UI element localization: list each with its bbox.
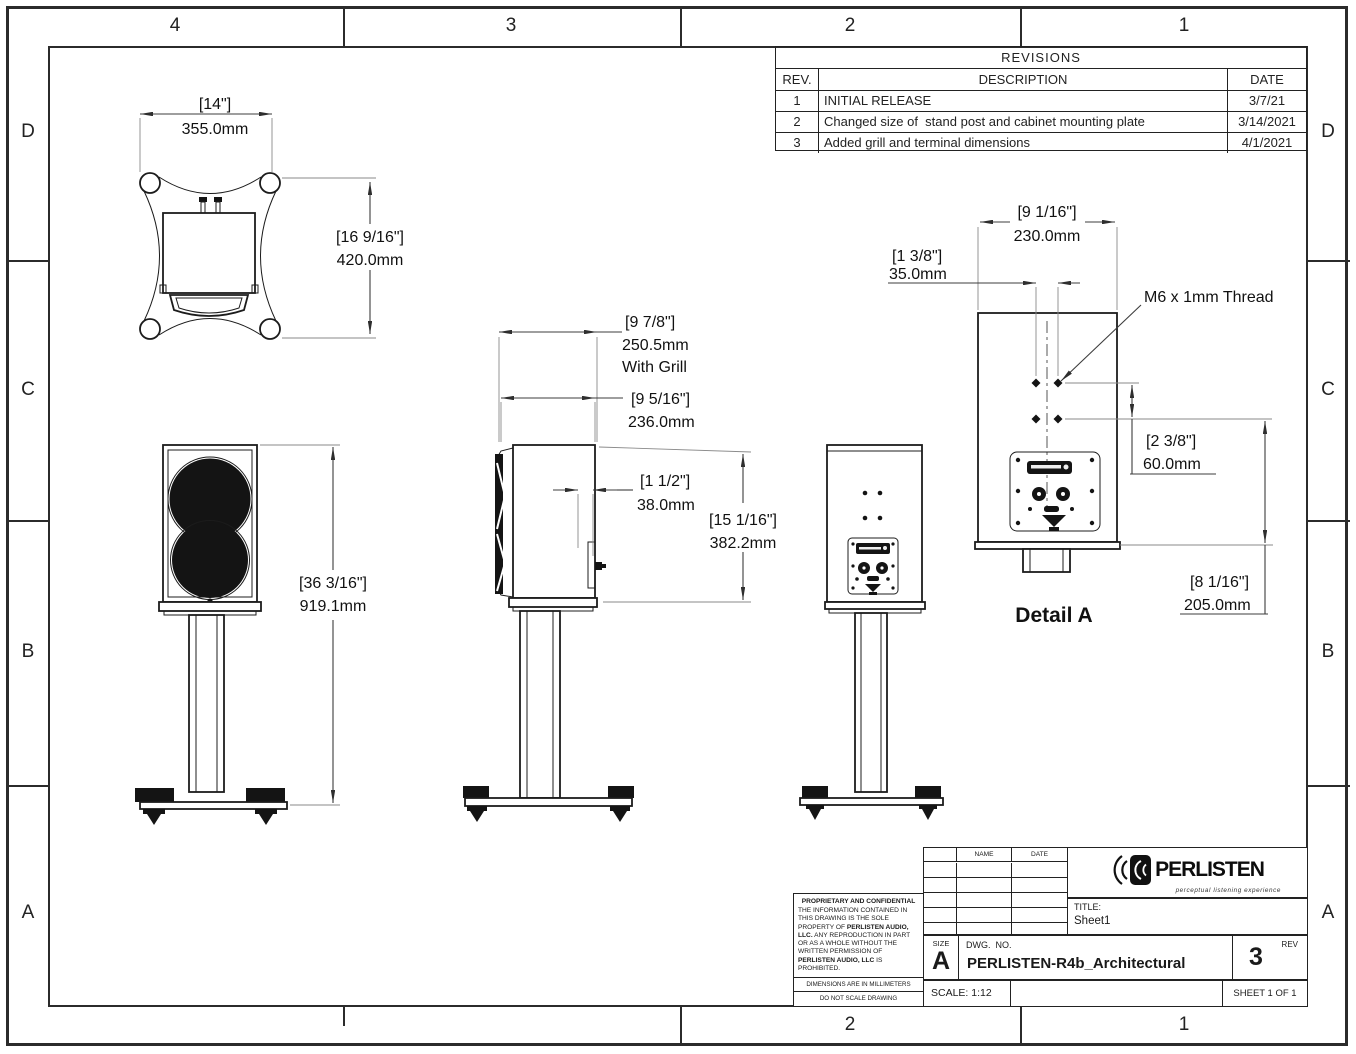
zone-label-left-c: C [17, 379, 39, 401]
revisions-header-description: DESCRIPTION [819, 69, 1227, 90]
revision-description: INITIAL RELEASE [819, 91, 1227, 111]
zone-tick-bottom [1020, 1007, 1022, 1046]
weight-field [1010, 980, 1223, 1007]
zone-label-right-b: B [1317, 641, 1339, 663]
zone-label-right-c: C [1317, 379, 1339, 401]
dim-cabinet-depth-mm: 236.0mm [628, 414, 695, 431]
approval-cell [924, 863, 957, 878]
dim-cabinet-height-mm: 382.2mm [710, 535, 777, 552]
revisions-title: REVISIONS [776, 47, 1306, 69]
zone-tick-top [680, 6, 682, 46]
zone-label-bottom-1: 1 [1173, 1014, 1195, 1036]
proprietary-title: PROPRIETARY AND CONFIDENTIAL [797, 898, 920, 905]
title-block: PROPRIETARY AND CONFIDENTIAL THE INFORMA… [793, 847, 1308, 1007]
revision-row: 2 Changed size of stand post and cabinet… [776, 112, 1306, 133]
proprietary-body: THE INFORMATION CONTAINED IN THIS DRAWIN… [798, 907, 919, 973]
approval-cell [957, 893, 1012, 908]
approval-cell [924, 893, 957, 908]
approval-cell [957, 863, 1012, 878]
front-view: [36 3/16"] 919.1mm [130, 430, 420, 830]
dimension-overall-height: [36 3/16"] 919.1mm [260, 445, 367, 805]
revisions-table: REVISIONS REV. DESCRIPTION DATE 1 INITIA… [775, 46, 1307, 151]
dim-cabinet-depth-inch: [9 5/16"] [631, 391, 690, 408]
rev-value: 3 [1249, 943, 1263, 972]
rev-label: REV [1282, 940, 1298, 949]
side-view: [9 7/8"] 250.5mm With Grill [9 5/16"] 23… [455, 300, 790, 830]
dim-hole-spacing-v-mm: 60.0mm [1143, 456, 1201, 473]
stand-coupler [1023, 549, 1070, 572]
revision-date: 3/7/21 [1227, 91, 1306, 111]
dimension-cabinet-width: [9 1/16"] 230.0mm [978, 204, 1117, 310]
dwg-label: DWG. NO. [966, 940, 1232, 950]
approval-name-header: NAME [957, 848, 1012, 862]
dwg-number-field: DWG. NO. PERLISTEN-R4b_Architectural [958, 935, 1233, 980]
revisions-header-date: DATE [1227, 69, 1306, 90]
approval-cell [1012, 908, 1067, 923]
zone-label-right-a: A [1317, 902, 1339, 924]
cabinet-detail-view [975, 287, 1120, 572]
revision-description: Added grill and terminal dimensions [819, 133, 1227, 153]
stand-front-view [135, 602, 287, 825]
zone-label-left-a: A [17, 902, 39, 924]
zone-tick-bottom [680, 1007, 682, 1046]
dim-hole-spacing-h-mm: 35.0mm [889, 266, 947, 283]
revision-number: 2 [776, 112, 819, 132]
zone-tick-right [1308, 785, 1350, 787]
zone-tick-right [1308, 260, 1350, 262]
revision-row: 1 INITIAL RELEASE 3/7/21 [776, 91, 1306, 112]
approval-cell [924, 908, 957, 923]
dwg-value: PERLISTEN-R4b_Architectural [967, 955, 1232, 972]
zone-tick-bottom [343, 1007, 345, 1026]
size-field: SIZE A [923, 935, 959, 980]
dimension-cabinet-height: [15 1/16"] 382.2mm [599, 447, 777, 602]
zone-label-top-1: 1 [1173, 15, 1195, 37]
revision-description: Changed size of stand post and cabinet m… [819, 112, 1227, 132]
grill-top-view [170, 295, 248, 316]
dimension-base-depth: [16 9/16"] 420.0mm [282, 178, 404, 338]
dim-base-depth-mm: 420.0mm [337, 252, 404, 269]
cabinet-side-view [495, 445, 606, 598]
dimension-hole-height: [8 1/16"] 205.0mm [1120, 421, 1273, 614]
dim-cabinet-height-inch: [15 1/16"] [709, 512, 777, 529]
zone-label-bottom-2: 2 [839, 1014, 861, 1036]
dimension-base-width: [14"] 355.0mm [140, 96, 272, 172]
woofer-grill-lower [172, 522, 248, 598]
dim-overall-height-inch: [36 3/16"] [299, 575, 367, 592]
top-view: [14"] 355.0mm [16 9/16"] 420.0mm [120, 80, 420, 350]
dim-base-depth-inch: [16 9/16"] [336, 229, 404, 246]
units-note: DIMENSIONS ARE IN MILLIMETERS [794, 977, 923, 992]
approval-cell [1012, 878, 1067, 893]
zone-tick-top [343, 6, 345, 46]
grill-side-view [495, 448, 513, 597]
stand-side-view [463, 598, 634, 822]
scale-warning-note: DO NOT SCALE DRAWING [794, 991, 923, 1006]
cabinet-front-view [163, 445, 257, 604]
revisions-header-rev: REV. [776, 69, 819, 90]
dim-cabinet-width-inch: [9 1/16"] [1017, 204, 1076, 221]
zone-label-top-2: 2 [839, 15, 861, 37]
sheet-field: SHEET 1 OF 1 [1222, 980, 1308, 1007]
zone-tick-left [6, 520, 48, 522]
cabinet-top-view [160, 197, 258, 316]
scale-field: SCALE: 1:12 [923, 980, 1011, 1007]
dim-overall-height-mm: 919.1mm [300, 598, 367, 615]
drawing-sheet: 4 3 2 1 2 1 D C B A D C B A REVISIONS RE… [0, 0, 1356, 1054]
revision-date: 4/1/2021 [1227, 133, 1306, 153]
thread-callout-text: M6 x 1mm Thread [1144, 289, 1274, 306]
perlisten-logo-icon [1111, 853, 1153, 887]
title-value: Sheet1 [1074, 915, 1307, 927]
revision-date: 3/14/2021 [1227, 112, 1306, 132]
approval-date-header: DATE [1012, 848, 1067, 862]
zone-tick-top [1020, 6, 1022, 46]
zone-label-left-b: B [17, 641, 39, 663]
zone-label-top-4: 4 [164, 15, 186, 37]
approval-cell [957, 908, 1012, 923]
dim-cabinet-width-mm: 230.0mm [1014, 228, 1081, 245]
revision-number: 3 [776, 133, 819, 153]
size-value: A [924, 948, 958, 974]
zone-label-right-d: D [1317, 121, 1339, 143]
revisions-header-row: REV. DESCRIPTION DATE [776, 69, 1306, 91]
detail-a-label: Detail A [1015, 604, 1092, 627]
dim-hole-height-inch: [8 1/16"] [1190, 574, 1249, 591]
dim-depth-grill-inch: [9 7/8"] [625, 314, 675, 331]
logo-text: PERLISTEN [1155, 858, 1264, 882]
zone-label-left-d: D [17, 121, 39, 143]
dimension-cabinet-depth: [9 5/16"] 236.0mm [501, 391, 695, 442]
revision-row: 3 Added grill and terminal dimensions 4/… [776, 133, 1306, 153]
zone-label-top-3: 3 [500, 15, 522, 37]
zone-tick-right [1308, 520, 1350, 522]
dim-base-width-inch: [14"] [199, 96, 231, 113]
dimension-hole-spacing-h: [1 3/8"] 35.0mm [888, 248, 1080, 283]
dim-hole-height-mm: 205.0mm [1184, 597, 1251, 614]
dim-terminal-depth-inch: [1 1/2"] [640, 473, 690, 490]
zone-tick-left [6, 785, 48, 787]
approval-cell [1012, 893, 1067, 908]
logo-tagline: perceptual listening experience [1068, 887, 1281, 894]
binding-posts-top [199, 197, 222, 213]
revision-number: 1 [776, 91, 819, 111]
title-label: TITLE: [1074, 902, 1307, 912]
rev-field: REV 3 [1232, 935, 1308, 980]
detail-a-view: [9 1/16"] 230.0mm [1 3/8"] 35.0mm M6 x 1… [880, 195, 1310, 640]
dim-depth-grill-mm: 250.5mm [622, 337, 689, 354]
zone-tick-left [6, 260, 48, 262]
approval-cell [924, 878, 957, 893]
company-logo: PERLISTEN perceptual listening experienc… [1067, 847, 1308, 898]
dim-depth-grill-note: With Grill [622, 359, 687, 376]
dim-hole-spacing-h-inch: [1 3/8"] [892, 248, 942, 265]
dim-base-width-mm: 355.0mm [182, 121, 249, 138]
approval-row-label [924, 848, 957, 862]
dim-terminal-depth-mm: 38.0mm [637, 497, 695, 514]
approval-cell [957, 878, 1012, 893]
approval-cell [1012, 863, 1067, 878]
binding-post-side [595, 562, 606, 570]
approval-table: NAME DATE [923, 847, 1068, 935]
title-field: TITLE: Sheet1 [1067, 898, 1308, 935]
dim-hole-spacing-v-inch: [2 3/8"] [1146, 433, 1196, 450]
proprietary-notice: PROPRIETARY AND CONFIDENTIAL THE INFORMA… [793, 893, 924, 1007]
